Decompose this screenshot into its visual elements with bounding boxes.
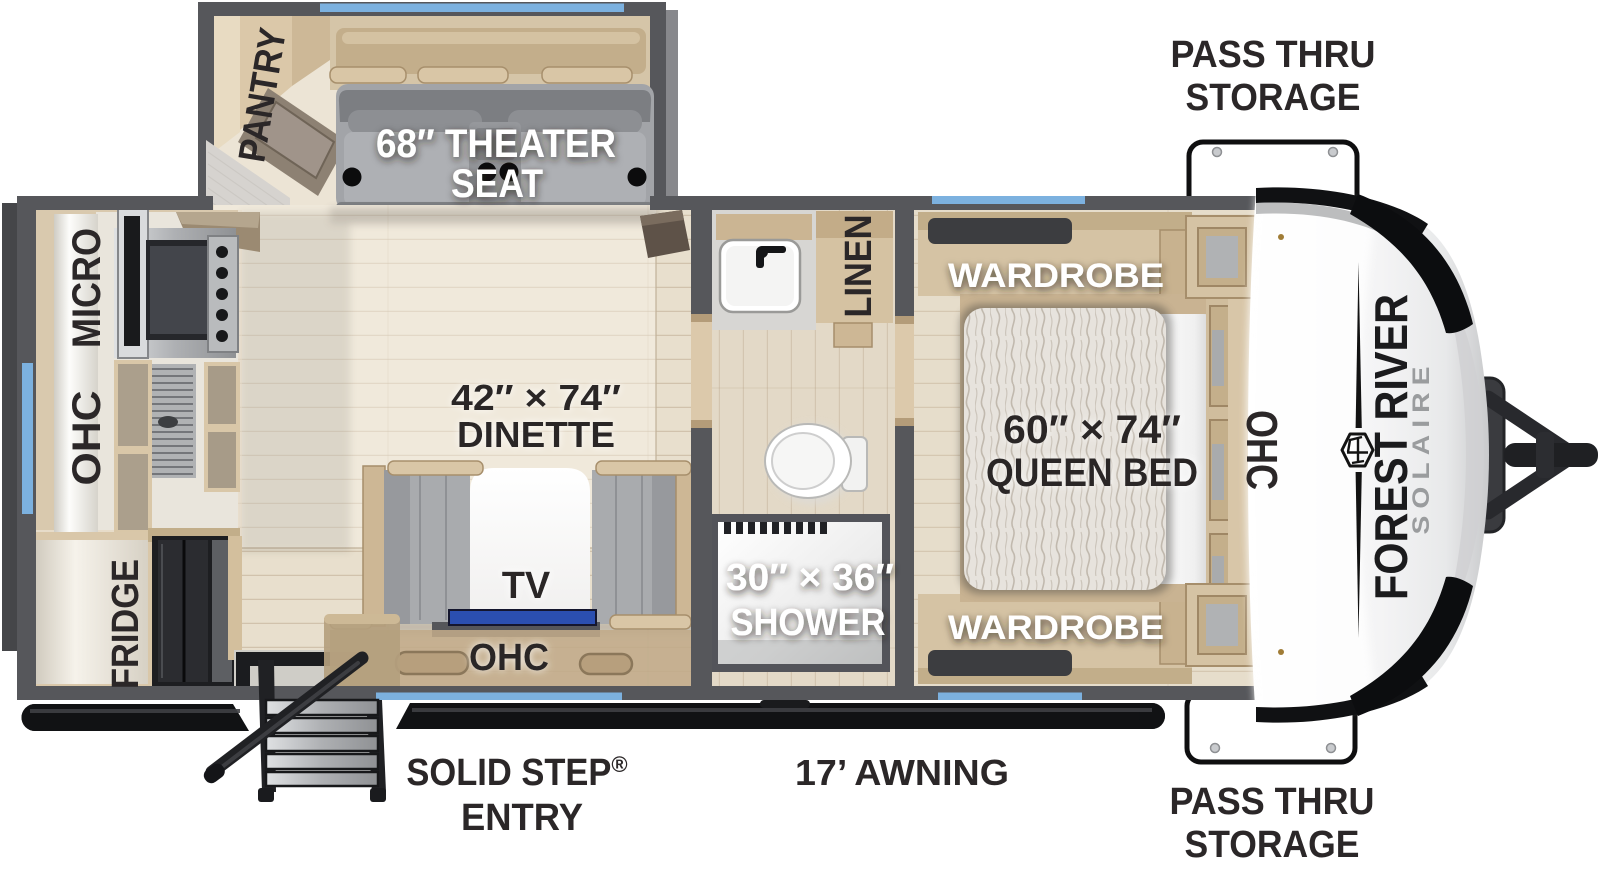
svg-text:17’ AWNING: 17’ AWNING bbox=[795, 752, 1009, 793]
svg-text:SEAT: SEAT bbox=[451, 162, 543, 206]
svg-text:OHC: OHC bbox=[469, 637, 549, 679]
svg-text:DINETTE: DINETTE bbox=[457, 414, 615, 455]
svg-text:42″ × 74″: 42″ × 74″ bbox=[451, 377, 621, 418]
svg-text:MICRO: MICRO bbox=[65, 228, 109, 348]
svg-text:WARDROBE: WARDROBE bbox=[948, 609, 1164, 647]
svg-text:FRIDGE: FRIDGE bbox=[105, 559, 147, 689]
svg-text:SHOWER: SHOWER bbox=[731, 602, 886, 644]
svg-text:SOLID STEP®: SOLID STEP® bbox=[406, 752, 627, 794]
svg-text:WARDROBE: WARDROBE bbox=[948, 257, 1164, 295]
svg-text:30″ × 36″: 30″ × 36″ bbox=[726, 557, 894, 599]
svg-text:LINEN: LINEN bbox=[838, 215, 880, 318]
svg-text:OHC: OHC bbox=[65, 391, 109, 486]
svg-text:PASS THRU: PASS THRU bbox=[1171, 34, 1376, 76]
svg-text:SOLAIRE: SOLAIRE bbox=[1408, 360, 1435, 535]
svg-text:STORAGE: STORAGE bbox=[1186, 77, 1361, 119]
svg-text:TV: TV bbox=[502, 565, 551, 607]
svg-text:STORAGE: STORAGE bbox=[1185, 824, 1360, 866]
svg-text:68″ THEATER: 68″ THEATER bbox=[376, 122, 616, 166]
svg-text:OHC: OHC bbox=[1237, 410, 1286, 490]
svg-text:ENTRY: ENTRY bbox=[461, 797, 583, 839]
svg-text:PASS THRU: PASS THRU bbox=[1170, 781, 1375, 823]
svg-text:QUEEN BED: QUEEN BED bbox=[986, 451, 1198, 495]
svg-text:60″ × 74″: 60″ × 74″ bbox=[1003, 408, 1181, 452]
